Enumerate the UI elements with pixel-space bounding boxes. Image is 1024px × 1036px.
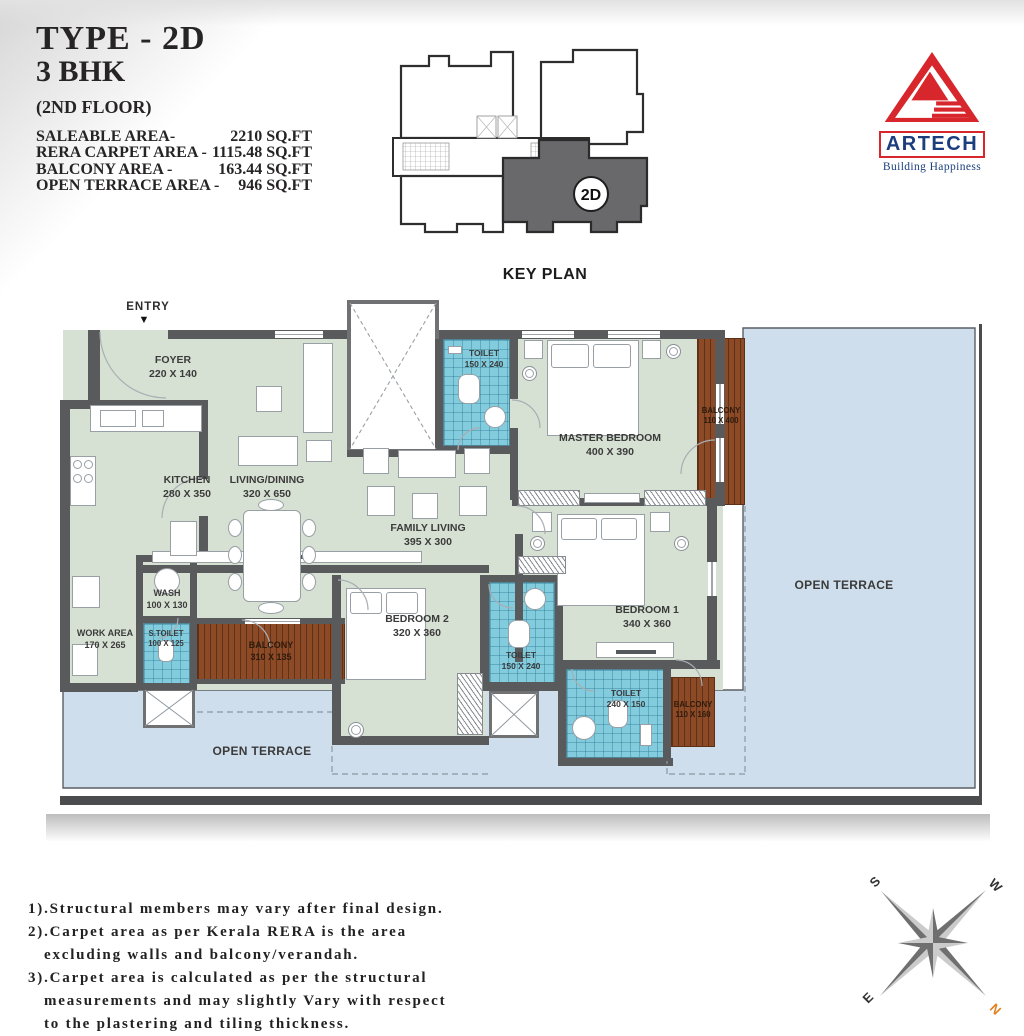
brand-logo: ARTECH Building Happiness bbox=[872, 50, 992, 173]
floor-plan: ENTRY ▼ FOYER220 X 140 KITCHEN280 X 350 … bbox=[60, 288, 985, 828]
compass-rose-icon: S W E N bbox=[858, 868, 1008, 1018]
room-label-balcony-master: BALCONY110 X 400 bbox=[702, 406, 741, 426]
room-label-toilet-bottom: TOILET240 X 150 bbox=[607, 688, 646, 710]
entry-label: ENTRY bbox=[126, 301, 170, 313]
area-row: RERA CARPET AREA - 1115.48 SQ.FT bbox=[36, 145, 312, 162]
open-terrace-label-right: OPEN TERRACE bbox=[795, 578, 894, 594]
room-label-balcony-left: BALCONY310 X 135 bbox=[249, 640, 294, 663]
area-label: OPEN TERRACE AREA - bbox=[36, 178, 219, 195]
room-label-bedroom2: BEDROOM 2320 X 360 bbox=[385, 613, 449, 640]
room-label-living: LIVING/DINING320 X 650 bbox=[230, 474, 305, 501]
note-line: 2).Carpet area as per Kerala RERA is the… bbox=[28, 921, 446, 944]
note-line: to the plastering and tiling thickness. bbox=[28, 1013, 446, 1036]
area-label: SALEABLE AREA- bbox=[36, 129, 175, 146]
note-line: excluding walls and balcony/verandah. bbox=[28, 944, 446, 967]
open-terrace-label-bottom: OPEN TERRACE bbox=[213, 744, 312, 760]
area-row: BALCONY AREA - 163.44 SQ.FT bbox=[36, 162, 312, 179]
entry-arrow-icon: ▼ bbox=[139, 314, 150, 326]
room-label-toilet-mid: TOILET150 X 240 bbox=[502, 650, 541, 672]
room-label-s-toilet: S.TOILET100 X 125 bbox=[148, 629, 184, 649]
area-table: SALEABLE AREA- 2210 SQ.FT RERA CARPET AR… bbox=[36, 129, 312, 195]
room-label-kitchen: KITCHEN280 X 350 bbox=[163, 474, 211, 501]
note-line: 3).Carpet area is calculated as per the … bbox=[28, 967, 446, 990]
key-plan-drawing: 2D bbox=[385, 36, 657, 241]
room-label-foyer: FOYER220 X 140 bbox=[149, 354, 197, 381]
bhk-title: 3 BHK bbox=[36, 56, 336, 88]
floor-subtitle: (2ND FLOOR) bbox=[36, 97, 336, 118]
disclaimer-notes: 1).Structural members may vary after fin… bbox=[28, 898, 446, 1036]
key-plan-caption: KEY PLAN bbox=[455, 266, 635, 284]
area-label: RERA CARPET AREA - bbox=[36, 145, 207, 162]
room-label-bedroom1: BEDROOM 1340 X 360 bbox=[615, 604, 679, 631]
compass-south-label: S bbox=[867, 873, 884, 890]
area-value: 1115.48 SQ.FT bbox=[212, 145, 312, 162]
logo-tagline: Building Happiness bbox=[872, 161, 992, 173]
area-row: SALEABLE AREA- 2210 SQ.FT bbox=[36, 129, 312, 146]
note-line: 1).Structural members may vary after fin… bbox=[28, 898, 446, 921]
room-label-balcony-bedroom1: BALCONY110 X 160 bbox=[674, 700, 713, 720]
room-label-family: FAMILY LIVING395 X 300 bbox=[390, 522, 465, 549]
title-block: TYPE - 2D 3 BHK (2ND FLOOR) SALEABLE ARE… bbox=[36, 22, 336, 195]
room-label-wash: WASH100 X 130 bbox=[146, 588, 187, 611]
key-plan-unit-badge: 2D bbox=[581, 187, 601, 204]
plan-type-title: TYPE - 2D bbox=[36, 22, 336, 56]
area-value: 946 SQ.FT bbox=[238, 178, 312, 195]
logo-triangle-icon bbox=[880, 50, 984, 124]
plan-annotations bbox=[60, 288, 985, 828]
logo-brand-name: ARTECH bbox=[879, 131, 985, 158]
compass-east-label: E bbox=[860, 989, 877, 1006]
room-label-master: MASTER BEDROOM400 X 390 bbox=[559, 432, 661, 459]
area-label: BALCONY AREA - bbox=[36, 162, 172, 179]
room-label-toilet-top: TOILET150 X 240 bbox=[465, 348, 504, 370]
compass-north-label: N bbox=[987, 1001, 1004, 1018]
area-value: 163.44 SQ.FT bbox=[218, 162, 312, 179]
area-value: 2210 SQ.FT bbox=[230, 129, 312, 146]
compass-west-label: W bbox=[986, 876, 1006, 896]
room-label-work-area: WORK AREA170 X 265 bbox=[77, 628, 133, 651]
area-row: OPEN TERRACE AREA - 946 SQ.FT bbox=[36, 178, 312, 195]
note-line: measurements and may slightly Vary with … bbox=[28, 990, 446, 1013]
